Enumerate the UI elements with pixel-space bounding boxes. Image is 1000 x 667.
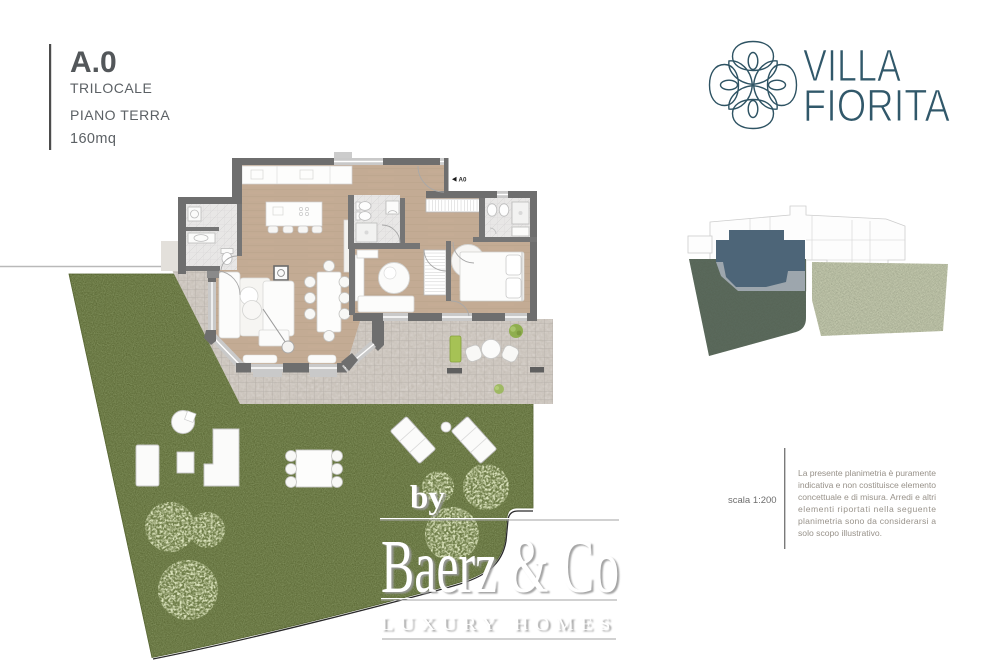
- svg-text:by: by: [410, 480, 445, 516]
- svg-text:A0: A0: [459, 177, 467, 184]
- svg-text:Baerz & Co: Baerz & Co: [381, 525, 619, 609]
- svg-text:TRILOCALE: TRILOCALE: [70, 80, 152, 96]
- svg-text:FIORITA: FIORITA: [803, 80, 950, 131]
- svg-text:scala 1:200: scala 1:200: [728, 495, 777, 506]
- svg-text:A.0: A.0: [70, 46, 117, 79]
- svg-text:La presente planimetria è pura: La presente planimetria è puramente: [798, 468, 936, 478]
- svg-text:solo scopo illustrativo.: solo scopo illustrativo.: [798, 528, 882, 538]
- svg-text:160mq: 160mq: [70, 131, 116, 147]
- svg-text:LUXURY HOMES: LUXURY HOMES: [381, 614, 617, 634]
- svg-text:elementi riportati nella segue: elementi riportati nella seguente: [798, 504, 936, 514]
- svg-text:PIANO TERRA: PIANO TERRA: [70, 107, 170, 123]
- svg-text:indicativa e non costituisce e: indicativa e non costituisce elemento: [798, 480, 936, 490]
- svg-text:concettuale e di misura. Arred: concettuale e di misura. Arredi e altri: [798, 492, 936, 502]
- svg-text:planimetria sono da considerar: planimetria sono da considerarsi a: [798, 516, 936, 526]
